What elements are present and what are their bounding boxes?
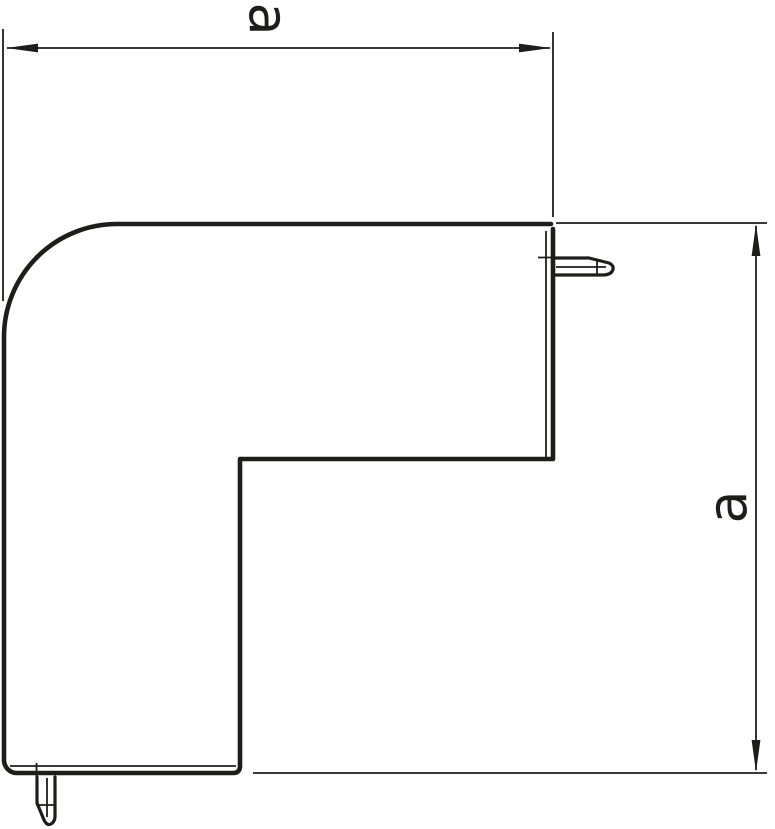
drawing-svg <box>0 0 775 829</box>
dimension-label-width: a <box>241 2 295 35</box>
latch-bottom-outline <box>37 777 55 825</box>
body-outline-path <box>4 224 553 773</box>
coupling-latch-bottom <box>36 777 55 825</box>
horizontal-dimension <box>6 44 551 53</box>
dimension-label-height: a <box>701 490 755 523</box>
arrowhead-up-icon <box>752 224 761 256</box>
technical-drawing: a a <box>0 0 775 829</box>
dimension-extension-lines <box>3 29 767 773</box>
elbow-body <box>4 224 556 777</box>
arrowhead-left-icon <box>6 44 38 53</box>
arrowhead-down-icon <box>752 740 761 772</box>
arrowhead-right-icon <box>519 44 551 53</box>
coupling-latch-right <box>556 258 613 275</box>
